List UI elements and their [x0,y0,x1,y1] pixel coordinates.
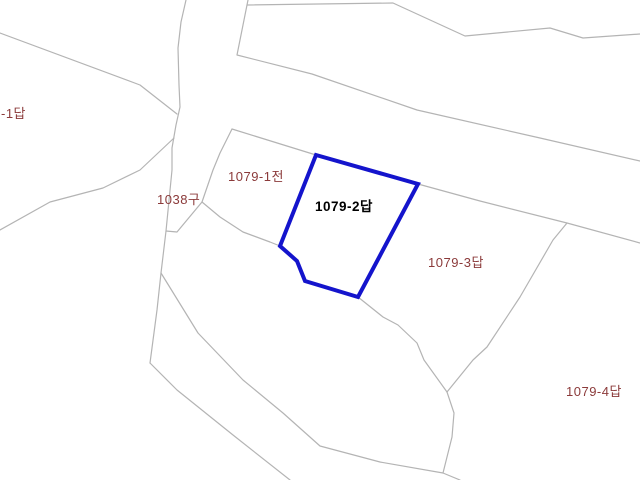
boundary-line-ditch-wedge-bottom [166,202,202,232]
boundary-line-road-upper-edge [247,3,640,38]
boundary-line-boundary-east-from-blue [418,184,640,243]
highlighted-parcel-outline[interactable] [280,155,418,297]
boundary-line-from-blue-bottom-vertex [358,297,447,392]
boundary-line-diagonal-upper-left [0,33,177,114]
boundary-line-left-curve [0,138,174,230]
boundary-line-stream-lower [150,363,290,480]
boundary-line-boundary-1079-3-4 [447,223,567,392]
boundary-line-branch-southeast [161,273,443,473]
boundary-line-parcel-1079-1-west-edge [202,129,232,202]
boundary-line-stream-upper [150,0,186,363]
boundary-line-edge-to-blue-west-vertex [202,202,280,246]
boundary-lines-layer [0,0,640,480]
boundary-line-parcel-1079-1-east-edge [232,129,316,155]
boundary-line-boundary-south [443,392,460,480]
map-canvas [0,0,640,480]
cadastral-map-view[interactable]: -1답1038구1079-1전1079-2답1079-3답1079-4답 [0,0,640,480]
